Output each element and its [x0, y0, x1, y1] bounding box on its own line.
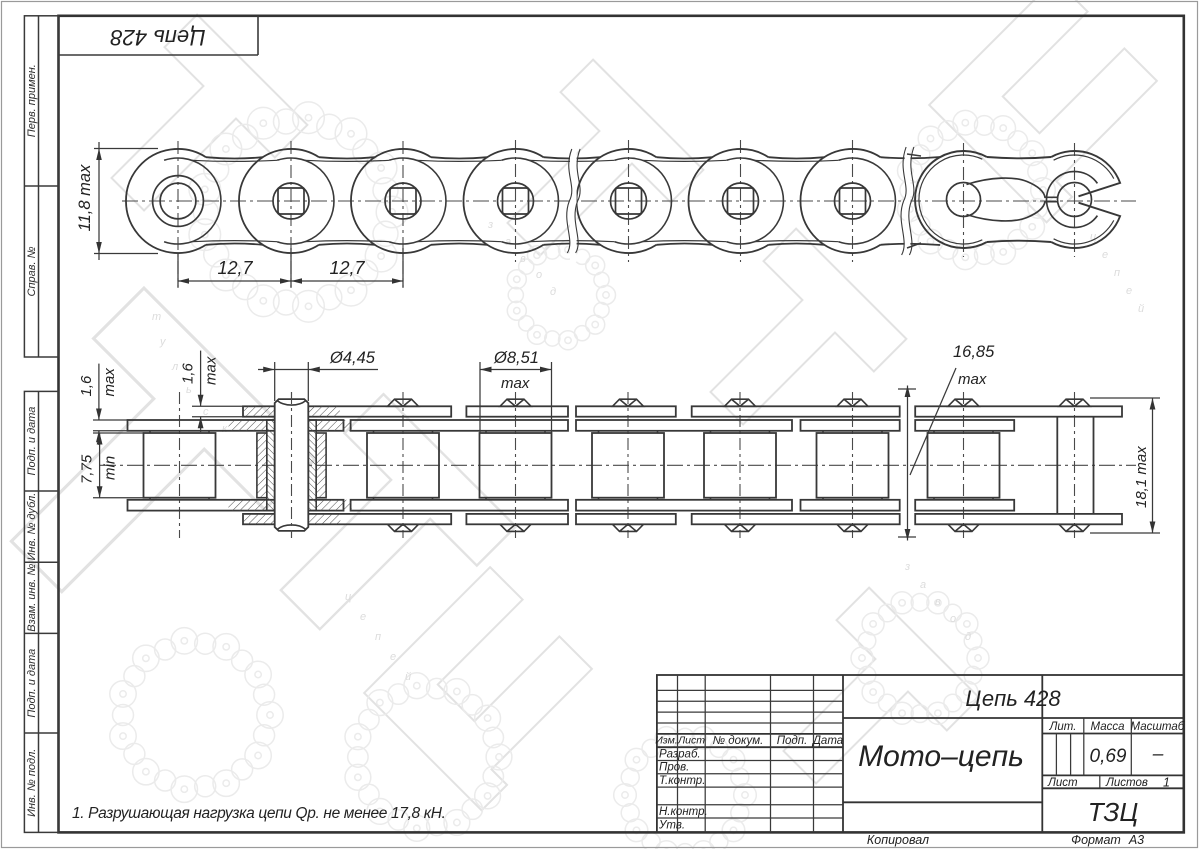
svg-text:А3: А3 [1128, 833, 1144, 847]
svg-text:а: а [920, 579, 926, 591]
svg-text:max: max [101, 368, 118, 397]
svg-text:min: min [102, 456, 119, 480]
svg-text:Ø8,51: Ø8,51 [493, 349, 539, 367]
svg-text:Подп. и дата: Подп. и дата [26, 649, 38, 718]
svg-text:Мото–цепь: Мото–цепь [858, 740, 1024, 773]
svg-text:в: в [520, 253, 526, 265]
svg-text:–: – [1152, 744, 1164, 765]
svg-text:max: max [203, 356, 220, 385]
svg-text:max: max [958, 371, 987, 388]
svg-text:т: т [152, 311, 161, 323]
svg-text:й: й [1138, 303, 1144, 315]
svg-text:max: max [501, 375, 530, 392]
svg-text:11,8 max: 11,8 max [76, 164, 94, 231]
svg-text:Изм.: Изм. [655, 735, 677, 747]
svg-text:Масштаб: Масштаб [1131, 721, 1185, 733]
svg-text:16,85: 16,85 [953, 343, 995, 361]
svg-text:е: е [360, 611, 366, 623]
svg-text:1,6: 1,6 [180, 362, 197, 384]
svg-text:о: о [950, 613, 956, 625]
svg-text:Дата: Дата [811, 735, 843, 747]
svg-text:Разраб.: Разраб. [659, 749, 701, 761]
svg-text:Взам. инв. №: Взам. инв. № [26, 564, 38, 632]
svg-text:Н.контр.: Н.контр. [659, 806, 708, 818]
svg-text:Лист: Лист [1047, 777, 1078, 789]
svg-text:0,69: 0,69 [1090, 746, 1127, 767]
svg-text:Справ. №: Справ. № [26, 246, 38, 296]
svg-text:е: е [1126, 285, 1132, 297]
svg-text:Лист: Лист [677, 735, 705, 747]
svg-text:1,6: 1,6 [78, 375, 95, 397]
svg-text:л: л [171, 361, 178, 373]
svg-text:о: о [536, 269, 542, 281]
svg-text:Подп. и дата: Подп. и дата [26, 407, 38, 476]
svg-text:12,7: 12,7 [217, 258, 253, 278]
svg-text:в: в [935, 596, 941, 608]
svg-text:Подп.: Подп. [777, 735, 808, 747]
svg-text:е: е [390, 651, 396, 663]
svg-text:д: д [965, 631, 971, 643]
svg-text:п: п [1114, 267, 1120, 279]
svg-text:ь: ь [186, 384, 192, 396]
svg-text:Формат: Формат [1071, 833, 1121, 847]
svg-text:Т.контр.: Т.контр. [659, 775, 705, 787]
svg-text:Перв. примен.: Перв. примен. [26, 64, 38, 137]
svg-text:№ докум.: № докум. [713, 735, 764, 747]
svg-text:Ø4,45: Ø4,45 [329, 349, 376, 367]
svg-text:ц: ц [345, 591, 351, 603]
svg-text:ТЗЦ: ТЗЦ [1088, 797, 1139, 827]
svg-text:е: е [1102, 249, 1108, 261]
svg-text:Утв.: Утв. [658, 819, 685, 831]
svg-text:Инв. № дубл.: Инв. № дубл. [26, 493, 38, 561]
svg-text:п: п [375, 631, 381, 643]
svg-text:з: з [904, 561, 910, 573]
svg-text:з: з [487, 219, 493, 231]
svg-text:Листов: Листов [1105, 777, 1148, 789]
svg-text:18,1 max: 18,1 max [1133, 446, 1150, 508]
svg-text:12,7: 12,7 [329, 258, 365, 278]
svg-text:Копировал: Копировал [867, 833, 929, 847]
svg-text:к: к [222, 423, 228, 435]
svg-text:7,75: 7,75 [79, 454, 96, 484]
svg-text:Пров.: Пров. [659, 762, 689, 774]
svg-text:Масса: Масса [1090, 721, 1124, 733]
svg-text:1. Разрушающая нагрузка цепи Q: 1. Разрушающая нагрузка цепи Qр. не мене… [72, 805, 446, 822]
svg-text:й: й [405, 671, 411, 683]
svg-text:Цепь 428: Цепь 428 [110, 25, 206, 50]
svg-text:1: 1 [1163, 776, 1170, 790]
svg-text:д: д [550, 286, 556, 298]
svg-text:Инв. № подл.: Инв. № подл. [26, 749, 38, 817]
svg-text:а: а [505, 236, 511, 248]
svg-text:Цепь 428: Цепь 428 [965, 686, 1061, 711]
svg-text:Лит.: Лит. [1049, 721, 1077, 733]
